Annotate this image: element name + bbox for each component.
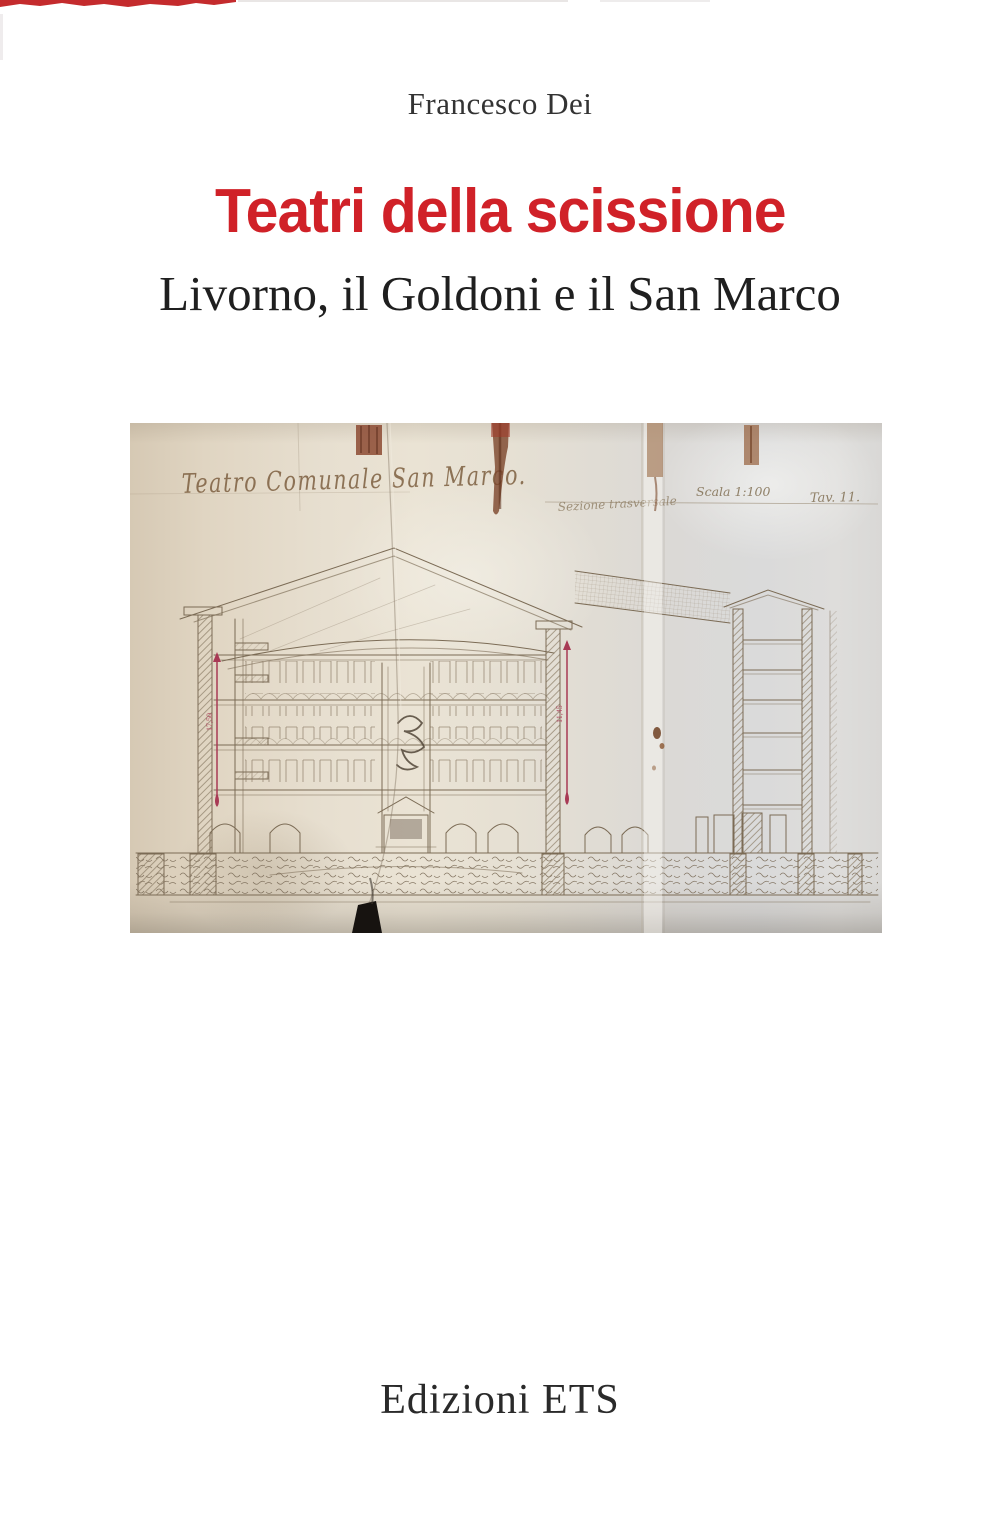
red-strip-shape [0,0,236,7]
book-title: Teatri della scissione [0,176,1000,247]
base-arcade [210,824,648,853]
book-subtitle: Livorno, il Goldoni e il San Marco [0,265,1000,322]
dimension-label-left: 17,50 [205,713,214,731]
portal-pediment [378,797,434,813]
proscenium-wall [546,629,560,854]
box-tier-2 [245,706,375,739]
annex-floors [743,640,802,805]
cover-photo-drawing-sheet: 17,50 11,45 Teatro Comunale San Marco. S… [130,423,882,933]
author-name: Francesco Dei [0,86,1000,122]
brown-spot [653,727,661,739]
ground-rubble-band [136,854,878,895]
stage-door [696,817,708,853]
gray-speckle-band-2 [600,0,710,2]
sketch-lines [136,548,878,902]
door-pier [742,813,762,853]
book-cover: Francesco Dei Teatri della scissione Liv… [0,0,1000,1520]
ink-blot [352,901,382,933]
annex-right-wall [802,609,812,854]
box-tier-1 [245,661,375,694]
book-title-text: Teatri della scissione [215,176,786,247]
right-gable [724,590,824,609]
handwritten-title: Teatro Comunale San Marco. [181,460,527,500]
box-tier-3 [245,751,375,784]
top-edge-red-strip [0,0,1000,10]
dimension-label-right: 11,45 [555,705,564,723]
theatre-section-sketch: 17,50 11,45 Teatro Comunale San Marco. S… [130,423,882,933]
tape-mark-3 [647,423,663,477]
left-edge-scan-mark [0,14,3,60]
left-outer-wall [198,615,212,854]
publisher-name: Edizioni ETS [0,1376,1000,1424]
right-fold-highlight [644,423,662,933]
scale-label: Scala 1:100 [696,484,771,499]
gray-speckle-band [238,0,568,2]
